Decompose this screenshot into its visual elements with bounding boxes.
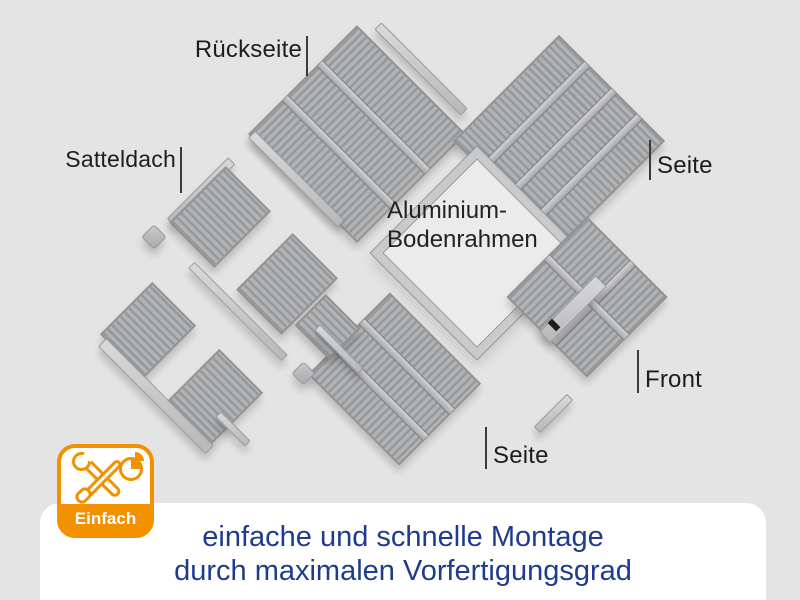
label-rueckseite: Rückseite [152, 36, 302, 64]
panel-divider-beam [282, 95, 396, 209]
label-bodenrahmen-line1: Aluminium- [387, 196, 538, 225]
caption-line2: durch maximalen Vorfertigungsgrad [40, 554, 766, 588]
label-seite-right: Seite [657, 152, 713, 180]
panel-divider-beam [506, 88, 617, 199]
label-bodenrahmen: Aluminium- Bodenrahmen [387, 196, 538, 254]
part-rail [534, 394, 574, 434]
label-tick-rueckseite [306, 36, 308, 76]
einfach-badge: Einfach [57, 444, 154, 538]
label-tick-satteldach [180, 147, 182, 193]
label-tick-seite-bottom [485, 427, 487, 469]
panel-divider-beam [531, 113, 642, 224]
label-seite-bottom: Seite [493, 442, 549, 470]
panel-divider-beam [479, 61, 590, 172]
panel-divider-beam [317, 60, 431, 174]
part-edge-cap [141, 224, 166, 249]
pie-slice-icon [135, 452, 144, 461]
panel-divider-beam [359, 318, 455, 414]
product-diagram-canvas: Rückseite Satteldach Aluminium- Bodenrah… [0, 0, 800, 600]
badge-label: Einfach [61, 504, 150, 534]
part-roof-panel [169, 166, 271, 268]
label-tick-front [637, 350, 639, 393]
label-tick-seite-right [649, 140, 651, 180]
label-front: Front [645, 366, 702, 394]
label-bodenrahmen-line2: Bodenrahmen [387, 225, 538, 254]
badge-icons [61, 448, 150, 504]
label-satteldach: Satteldach [30, 146, 176, 173]
part-edge-cap [291, 361, 315, 385]
